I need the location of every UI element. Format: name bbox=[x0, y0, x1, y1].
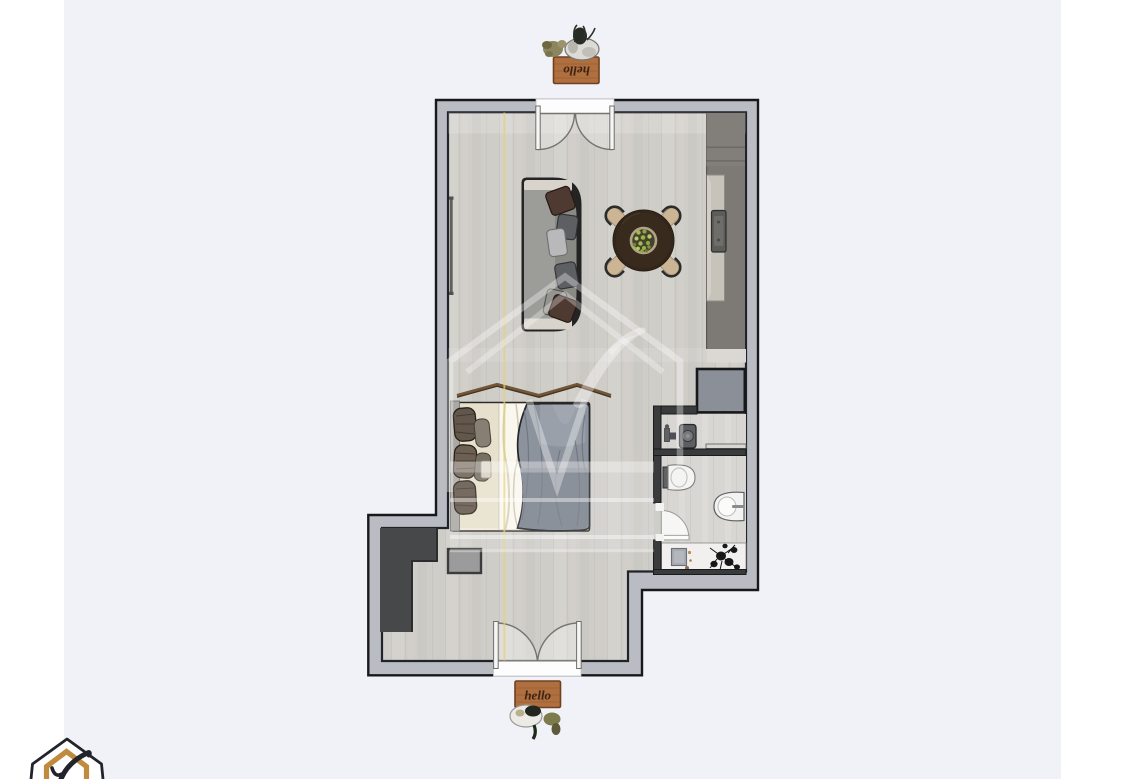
svg-text:hello: hello bbox=[524, 688, 551, 703]
svg-text:hello: hello bbox=[563, 64, 590, 79]
